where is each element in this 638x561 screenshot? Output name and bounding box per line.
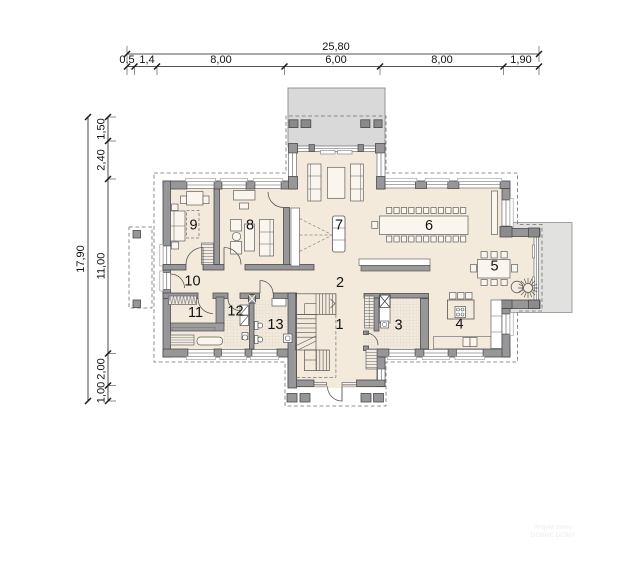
svg-text:8: 8 [246,218,254,234]
svg-text:3: 3 [394,318,402,334]
svg-text:1,00: 1,00 [96,382,108,403]
svg-text:6,00: 6,00 [325,54,346,66]
svg-text:9: 9 [189,218,197,234]
svg-text:2,00: 2,00 [96,358,108,379]
svg-text:4: 4 [455,317,463,333]
svg-text:1: 1 [335,317,343,333]
svg-text:5: 5 [490,259,498,275]
svg-text:1,4: 1,4 [139,54,154,66]
svg-text:1,90: 1,90 [510,54,531,66]
svg-text:DOBRE DOMY: DOBRE DOMY [531,532,576,539]
svg-text:1,50: 1,50 [96,118,108,139]
svg-text:11: 11 [188,305,203,321]
svg-text:0,5: 0,5 [119,54,134,66]
svg-text:11,00: 11,00 [96,253,108,280]
svg-text:6: 6 [425,218,433,234]
svg-text:2: 2 [336,275,344,291]
svg-text:12: 12 [227,304,243,320]
svg-text:17,90: 17,90 [75,245,87,273]
svg-text:Projekt domu: Projekt domu [534,524,573,531]
svg-text:7: 7 [335,218,343,234]
svg-text:8,00: 8,00 [431,54,452,66]
svg-text:13: 13 [267,317,283,333]
svg-text:8,00: 8,00 [210,54,231,66]
svg-text:25,80: 25,80 [322,41,350,53]
svg-text:2,40: 2,40 [96,149,108,170]
svg-text:10: 10 [184,274,200,290]
